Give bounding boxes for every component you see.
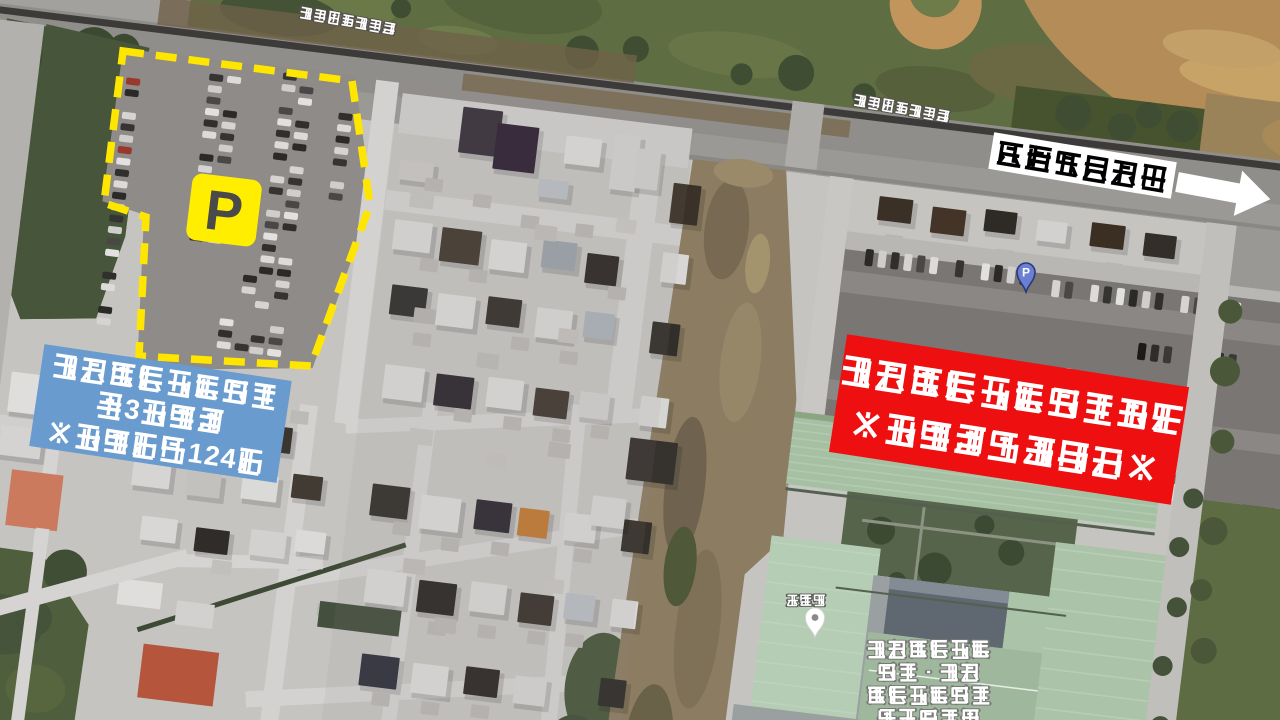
svg-text:P: P: [1022, 266, 1030, 280]
svg-text:P: P: [201, 177, 246, 244]
